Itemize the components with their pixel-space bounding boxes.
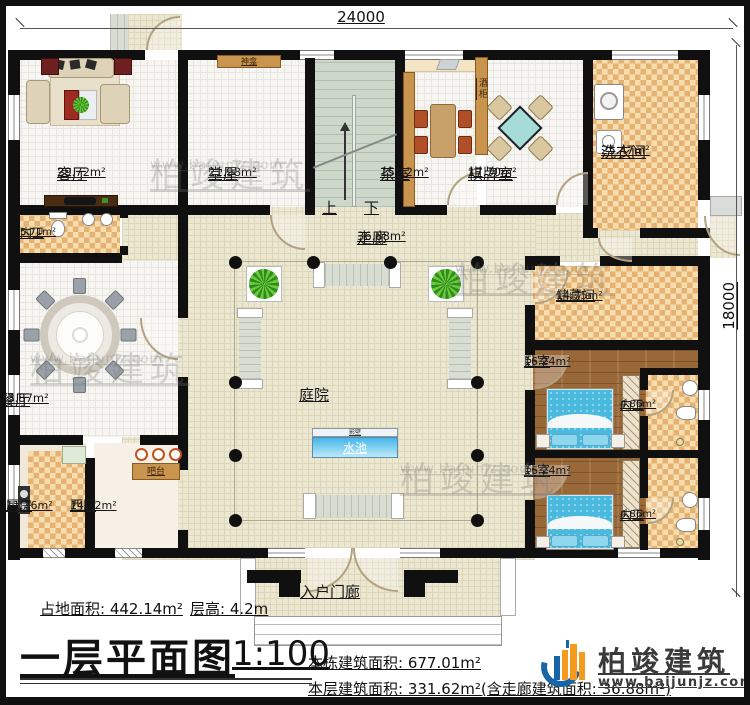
company-website: www.baijunjz.com	[598, 675, 750, 690]
room-area: 5.71m²	[20, 227, 56, 238]
column	[471, 256, 484, 269]
bar-counter: 吧台	[132, 463, 180, 480]
room-area: 14.75m²	[556, 290, 603, 302]
dimension-width-label: 24000	[301, 8, 421, 26]
room-area: 11.76m²	[6, 500, 53, 512]
window	[698, 498, 710, 530]
end-table	[114, 58, 132, 75]
room-area: 16.24m²	[524, 465, 571, 477]
room-area: 4.86m²	[620, 399, 656, 410]
toilet	[49, 212, 67, 219]
pillow	[582, 535, 609, 547]
wall	[640, 458, 648, 498]
wall	[178, 50, 188, 215]
bridge	[325, 264, 389, 286]
room-name: 庭院	[299, 387, 329, 404]
column	[229, 449, 242, 462]
shrine-cabinet: 神龛	[217, 55, 281, 68]
logo-bar	[566, 640, 569, 648]
wall	[640, 368, 710, 375]
pillow	[582, 434, 609, 446]
window	[698, 390, 710, 420]
nightstand	[536, 434, 550, 448]
room-area: 14.32m²	[70, 500, 117, 512]
porch-wall	[404, 583, 425, 597]
logo-bar	[570, 644, 577, 680]
column	[307, 256, 320, 269]
room-area: 15.12m²	[380, 166, 429, 179]
title-underline	[20, 678, 312, 680]
bridge-cap	[447, 308, 473, 318]
dining-chair	[73, 278, 86, 294]
plan-title: 一层平面图	[20, 626, 235, 684]
end-table	[41, 58, 59, 75]
wall	[525, 450, 710, 458]
wine-cabinet-label: 酒柜	[476, 78, 487, 100]
room-area: 36.88m²	[357, 230, 406, 243]
window	[268, 548, 305, 558]
nightstand	[611, 536, 625, 548]
wall	[640, 228, 710, 238]
wall	[8, 435, 83, 445]
company-logo-icon	[540, 638, 594, 692]
porch-wall	[279, 583, 300, 597]
title-underline	[20, 683, 312, 684]
column	[384, 256, 397, 269]
frame-border	[0, 0, 750, 6]
pillow	[551, 535, 578, 547]
column	[471, 514, 484, 527]
window	[698, 95, 710, 140]
sink-bowl	[100, 213, 113, 226]
tea-chair	[458, 110, 472, 128]
sofa	[100, 84, 130, 124]
stair-arrow-head	[340, 122, 350, 131]
frame-border	[0, 697, 750, 705]
room-area: 25.47m²	[601, 144, 650, 157]
window	[400, 548, 440, 558]
column	[471, 449, 484, 462]
tea-chair	[414, 110, 428, 128]
wall	[583, 228, 598, 238]
wall	[120, 210, 128, 218]
lazy-susan	[72, 327, 88, 343]
porch-wall	[404, 570, 458, 583]
porch-pillar	[500, 558, 516, 616]
sink-bowl	[682, 380, 698, 396]
stair-arrow-line	[344, 130, 346, 200]
dining-chair	[73, 377, 86, 393]
column	[471, 376, 484, 389]
frame-border	[744, 0, 750, 705]
dimension-tick	[15, 18, 24, 27]
wall	[188, 205, 270, 215]
shrine-label: 神龛	[241, 57, 257, 66]
drain	[676, 438, 684, 446]
room-area: 16.24m²	[524, 356, 571, 368]
table-plant	[73, 97, 89, 113]
wall	[640, 416, 648, 450]
room-area: 4.86m²	[620, 509, 656, 520]
plant-pot	[102, 198, 108, 203]
room-area: 29.72m²	[57, 166, 106, 179]
column	[229, 376, 242, 389]
floor-plan: 影壁 水池	[0, 0, 750, 705]
palm-plant	[249, 269, 279, 299]
wall	[140, 435, 178, 445]
sink-bowl	[682, 492, 698, 508]
stairs-down-text: 下	[364, 200, 379, 217]
screen-wall-label: 影壁	[349, 429, 361, 436]
wine-cabinet-text: 酒柜	[477, 78, 487, 100]
window	[8, 290, 20, 330]
hall-floor	[186, 58, 307, 207]
building-total-text: 本栋建筑面积: 677.01m²	[308, 652, 481, 673]
room-area: 21.98m²	[208, 166, 257, 179]
toilet	[676, 518, 696, 532]
sofa	[26, 80, 50, 124]
wall	[640, 375, 648, 390]
back-door-steps	[110, 14, 128, 50]
bar-stool	[152, 448, 165, 461]
wall	[525, 256, 535, 270]
frame-border	[0, 0, 6, 705]
pool: 水池	[312, 437, 398, 458]
room-area: 17.70m²	[468, 166, 517, 179]
palm-plant	[431, 269, 461, 299]
sink-glyph	[436, 59, 460, 70]
dimension-height-label: 18000	[720, 282, 738, 330]
wall	[305, 58, 315, 215]
window	[618, 548, 660, 558]
dimension-tick	[728, 18, 737, 27]
wall	[640, 524, 648, 550]
bridge-cap	[391, 493, 404, 519]
drain	[676, 538, 684, 546]
company-name: 柏竣建筑	[598, 640, 730, 680]
room-name: 入户门廊	[300, 584, 360, 601]
washer-drum	[600, 92, 618, 110]
bar-label: 吧台	[147, 467, 165, 477]
logo-bar	[579, 652, 585, 680]
dining-chair	[121, 329, 137, 342]
tea-chair	[414, 136, 428, 154]
bridge	[449, 318, 471, 379]
sink-bowl	[82, 213, 95, 226]
burner	[20, 490, 28, 498]
nightstand	[611, 434, 625, 448]
floor-height-text: 层高: 4.2m	[190, 598, 268, 619]
bar-stool	[135, 448, 148, 461]
tv	[64, 197, 96, 205]
vent	[43, 548, 65, 558]
screen-wall: 影壁	[312, 428, 398, 437]
bed-sheet	[548, 414, 612, 428]
tea-chair	[458, 136, 472, 154]
column	[229, 256, 242, 269]
wardrobe	[622, 460, 640, 548]
toilet	[676, 406, 696, 420]
wall	[525, 340, 710, 350]
wall	[480, 205, 556, 215]
bridge-cap	[447, 379, 473, 389]
wall	[8, 253, 122, 263]
porch-wall	[247, 570, 301, 583]
logo-bar	[562, 650, 568, 680]
logo-bar	[554, 656, 560, 680]
land-area-text: 占地面积: 442.14m²	[40, 598, 183, 619]
tea-table	[430, 104, 456, 158]
bridge	[239, 318, 261, 379]
bed-sheet	[548, 516, 612, 529]
wall	[178, 530, 188, 558]
bridge-cap	[303, 493, 316, 519]
column	[229, 514, 242, 527]
wall	[178, 215, 188, 318]
sofa-pillow	[69, 59, 80, 69]
kitchen-sink	[62, 446, 86, 464]
dimension-line-top	[20, 28, 733, 29]
door-opening	[145, 50, 180, 60]
bridge-cap	[237, 308, 263, 318]
bar-stool	[169, 448, 182, 461]
nightstand	[536, 536, 550, 548]
wall	[525, 500, 535, 548]
pool-label: 水池	[343, 441, 367, 455]
vent	[115, 548, 142, 558]
dining-chair	[24, 329, 40, 342]
pillow	[551, 434, 578, 446]
room-area: 33.87m²	[0, 392, 49, 405]
stairs-up-text: 上	[322, 200, 337, 217]
side-door-landing	[710, 196, 742, 216]
window	[8, 95, 20, 140]
bridge	[316, 495, 391, 517]
window	[612, 50, 678, 60]
